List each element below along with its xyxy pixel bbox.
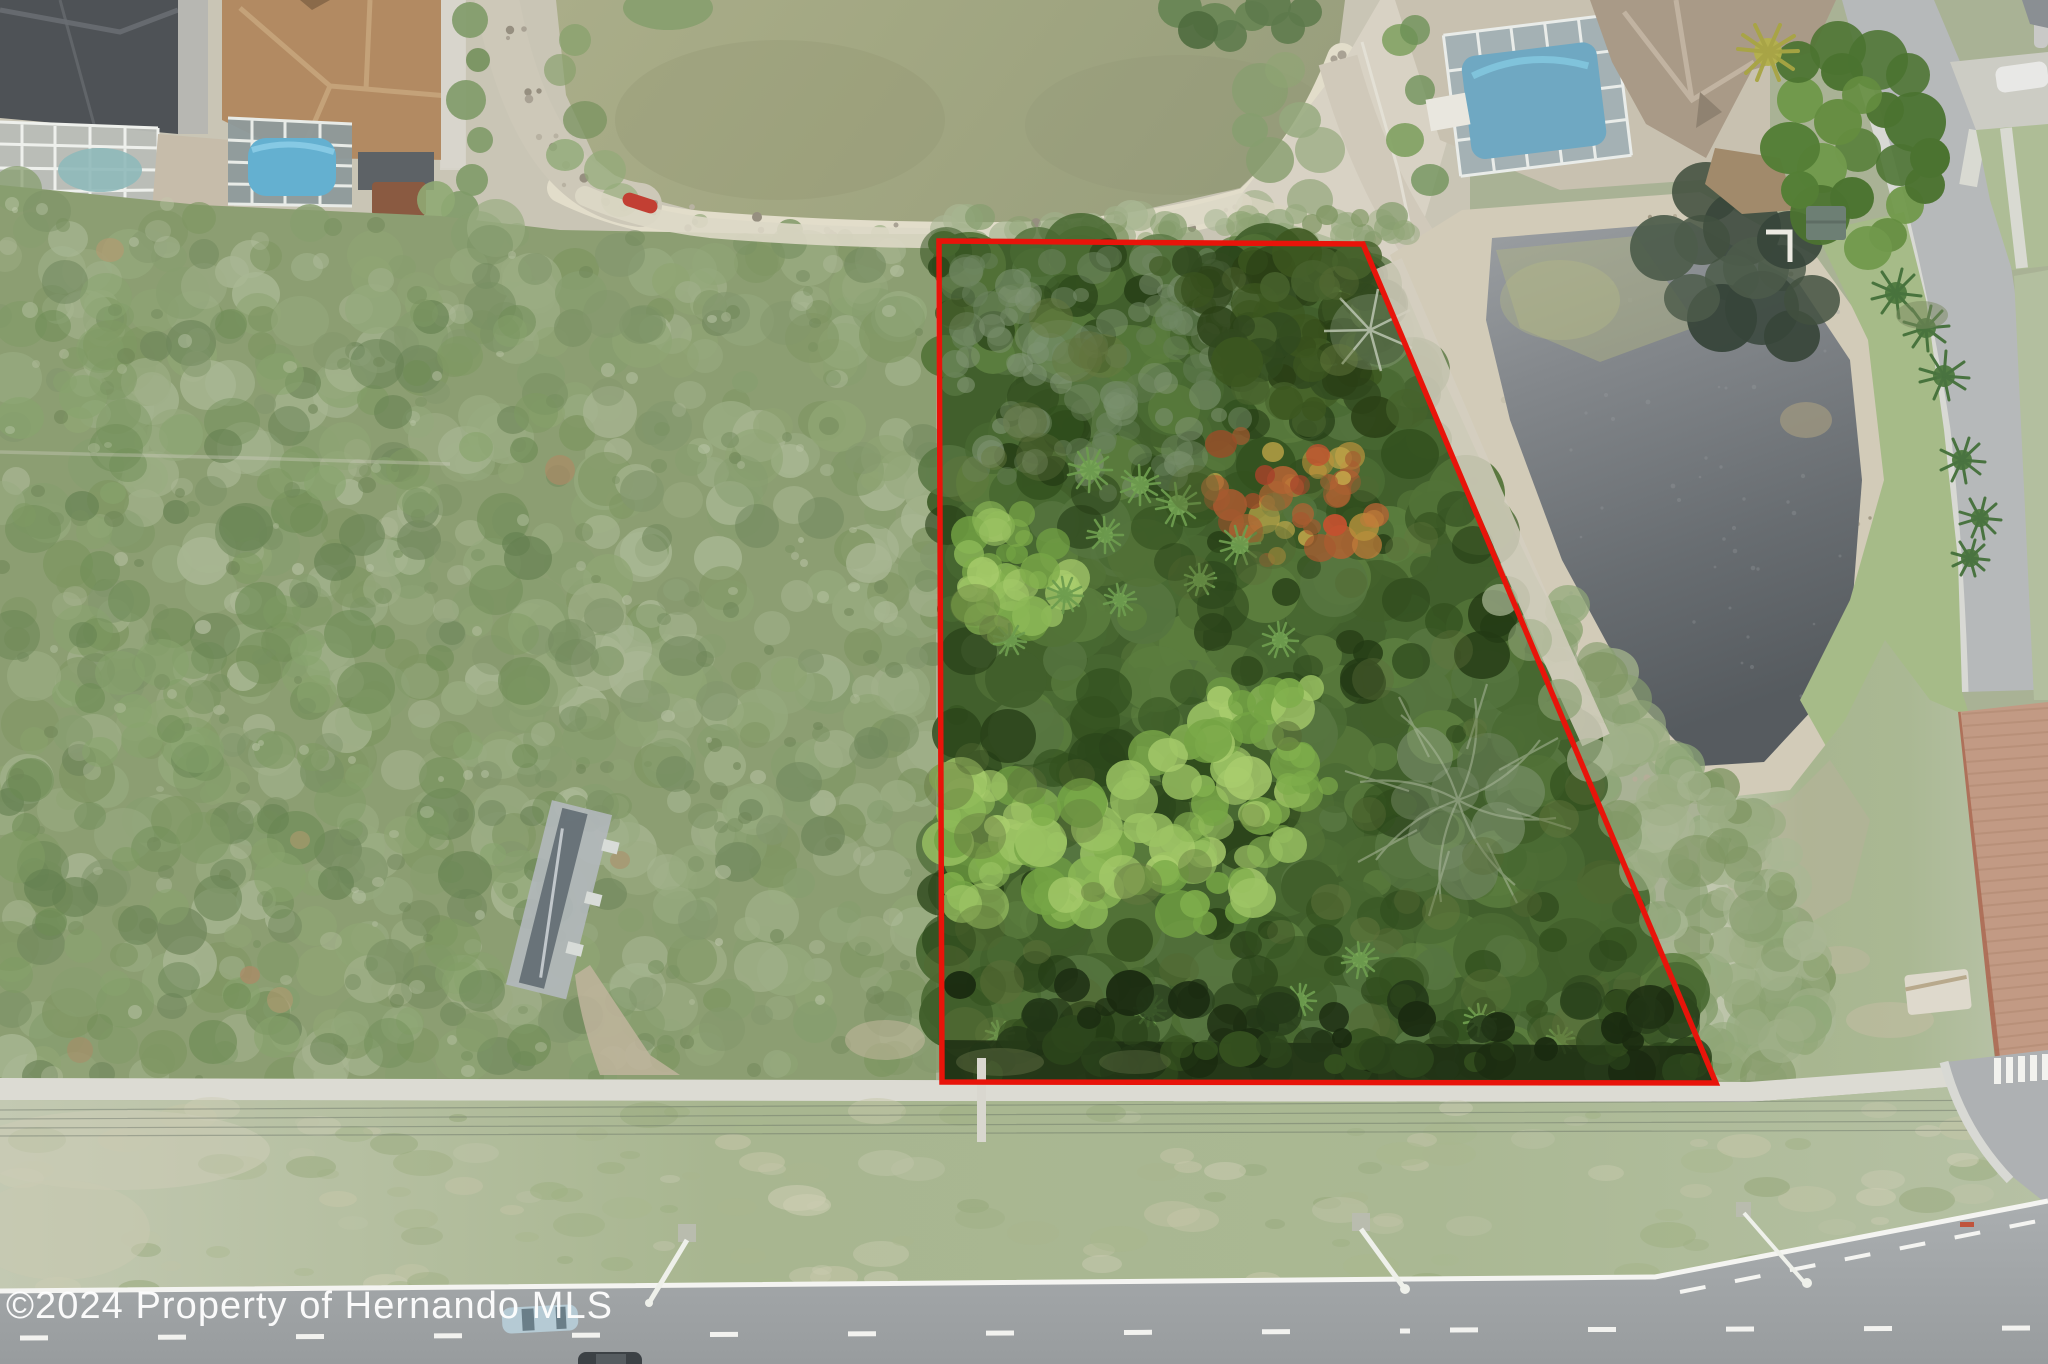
svg-text:©2024 Property of Hernando MLS: ©2024 Property of Hernando MLS [6, 1285, 612, 1327]
